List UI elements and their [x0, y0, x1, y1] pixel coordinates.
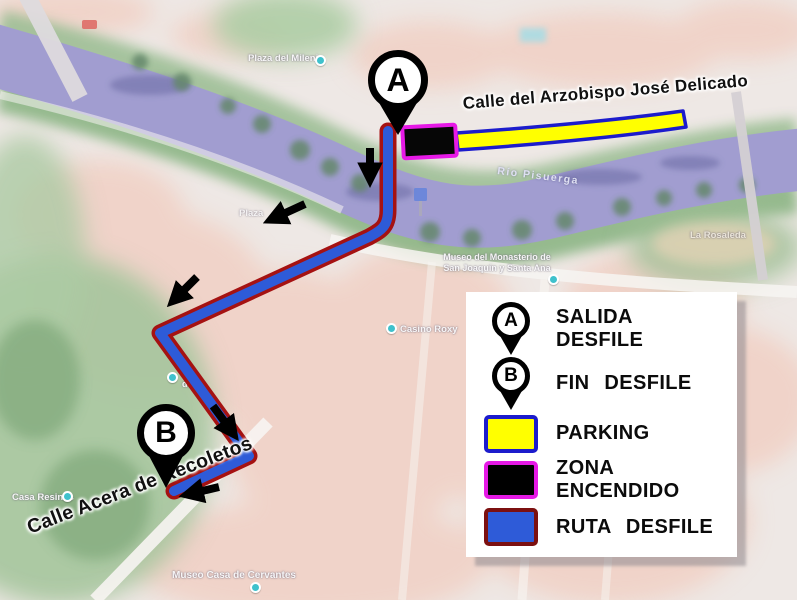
direction-arrow-icon	[198, 487, 219, 492]
marker-pin-a: A	[368, 50, 428, 135]
zona-swatch-icon	[484, 461, 538, 499]
legend-row-fin: B FIN DESFILE	[478, 357, 727, 410]
legend-row-zona: ZONA ENCENDIDO	[478, 457, 727, 503]
direction-arrows	[181, 148, 370, 492]
legend-row-ruta: RUTA DESFILE	[478, 505, 727, 549]
parking-swatch-icon	[484, 415, 538, 453]
legend-pin-b-icon: B	[492, 357, 530, 410]
marker-b-letter: B	[137, 404, 195, 462]
legend: A SALIDA DESFILE B FIN DESFILE PARKING	[466, 292, 737, 557]
legend-label-fin: FIN DESFILE	[544, 372, 692, 395]
legend-label-parking: PARKING	[544, 422, 650, 445]
legend-label-ruta: RUTA DESFILE	[544, 516, 713, 539]
map-canvas: Río Pisuerga Plaza del Milenio Museo del…	[0, 0, 797, 600]
legend-row-salida: A SALIDA DESFILE	[478, 302, 727, 355]
direction-arrow-icon	[181, 277, 197, 293]
legend-pin-a-icon: A	[492, 302, 530, 355]
ruta-swatch-icon	[484, 508, 538, 546]
parking-zone-strip	[456, 111, 686, 150]
legend-row-parking: PARKING	[478, 412, 727, 456]
legend-label-salida: SALIDA DESFILE	[544, 306, 727, 352]
legend-label-zona: ZONA ENCENDIDO	[544, 457, 727, 503]
direction-arrow-icon	[281, 204, 305, 215]
marker-pin-b: B	[137, 404, 195, 488]
marker-a-letter: A	[368, 50, 428, 110]
